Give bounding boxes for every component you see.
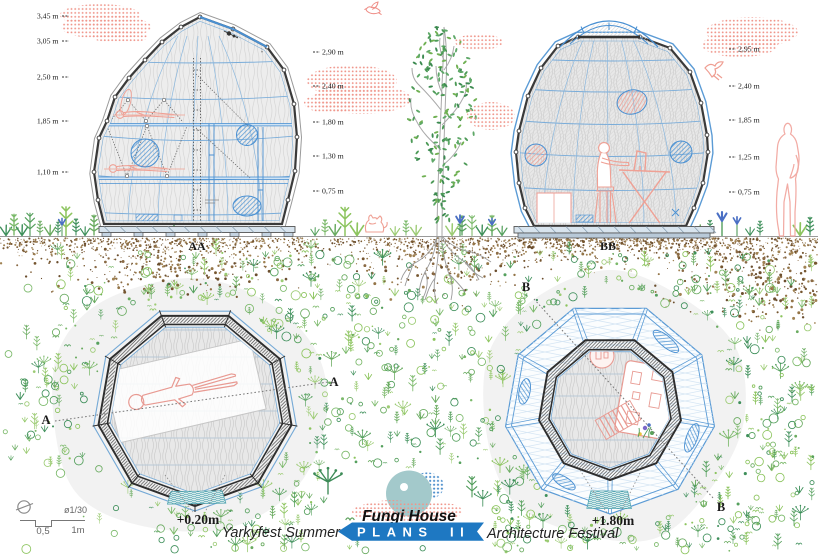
svg-text:A: A: [41, 413, 50, 427]
svg-text:2,90 m: 2,90 m: [322, 48, 344, 57]
svg-text:Architecture Festival: Architecture Festival: [486, 526, 619, 542]
svg-text:3,45 m: 3,45 m: [37, 12, 59, 21]
svg-text:Yarkyfest Summer: Yarkyfest Summer: [222, 525, 341, 541]
svg-text:0,5: 0,5: [36, 526, 49, 537]
svg-text:2,50 m: 2,50 m: [37, 73, 59, 82]
svg-text:3,05 m: 3,05 m: [37, 37, 59, 46]
svg-text:A: A: [329, 375, 338, 389]
svg-text:Fungi House: Fungi House: [362, 508, 456, 525]
svg-text:AA: AA: [188, 239, 206, 253]
svg-text:B: B: [522, 280, 530, 294]
svg-text:2,95 m: 2,95 m: [738, 45, 760, 54]
svg-text:1,30 m: 1,30 m: [322, 152, 344, 161]
svg-text:0,75 m: 0,75 m: [322, 187, 344, 196]
svg-text:1,10 m: 1,10 m: [37, 168, 59, 177]
svg-text:2,40 m: 2,40 m: [738, 82, 760, 91]
svg-text:+0.20m: +0.20m: [177, 512, 220, 527]
svg-text:1,85 m: 1,85 m: [37, 117, 59, 126]
svg-text:1m: 1m: [71, 525, 84, 536]
svg-text:1,80 m: 1,80 m: [322, 118, 344, 127]
svg-text:2,40 m: 2,40 m: [322, 82, 344, 91]
svg-text:1,25 m: 1,25 m: [738, 153, 760, 162]
svg-text:BB: BB: [600, 239, 616, 253]
svg-text:PLANS: PLANS: [357, 525, 434, 540]
svg-text:ø1/30: ø1/30: [64, 505, 87, 515]
svg-text:II: II: [450, 525, 470, 540]
svg-text:1,85 m: 1,85 m: [738, 116, 760, 125]
svg-text:0,75 m: 0,75 m: [738, 188, 760, 197]
svg-text:B: B: [717, 500, 725, 514]
